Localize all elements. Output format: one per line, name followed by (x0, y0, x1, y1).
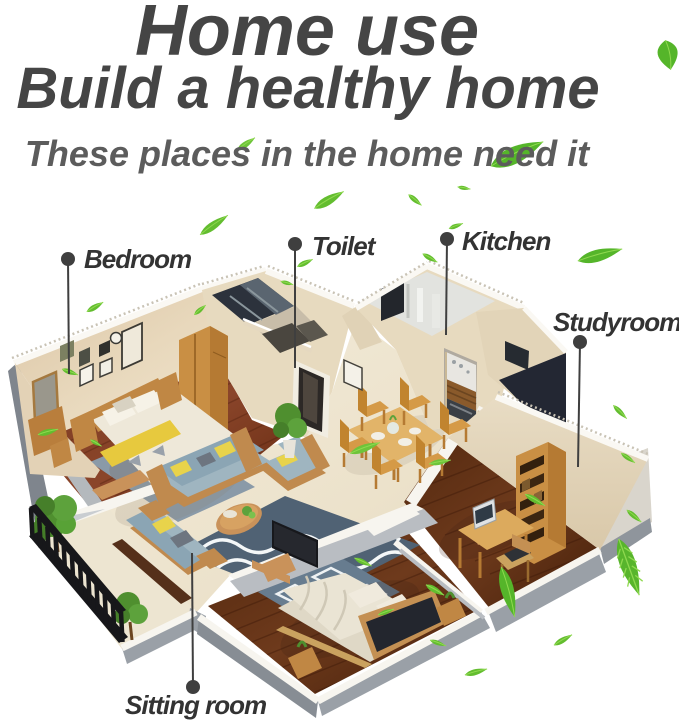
svg-text:Kitchen: Kitchen (462, 226, 550, 256)
svg-text:Studyroom: Studyroom (553, 307, 679, 337)
svg-text:Sitting room: Sitting room (125, 690, 267, 720)
svg-text:Build a healthy home: Build a healthy home (16, 56, 599, 121)
svg-text:Bedroom: Bedroom (84, 244, 192, 274)
svg-text:Toilet: Toilet (312, 231, 377, 261)
svg-text:These places in the home need: These places in the home need it (25, 133, 591, 174)
